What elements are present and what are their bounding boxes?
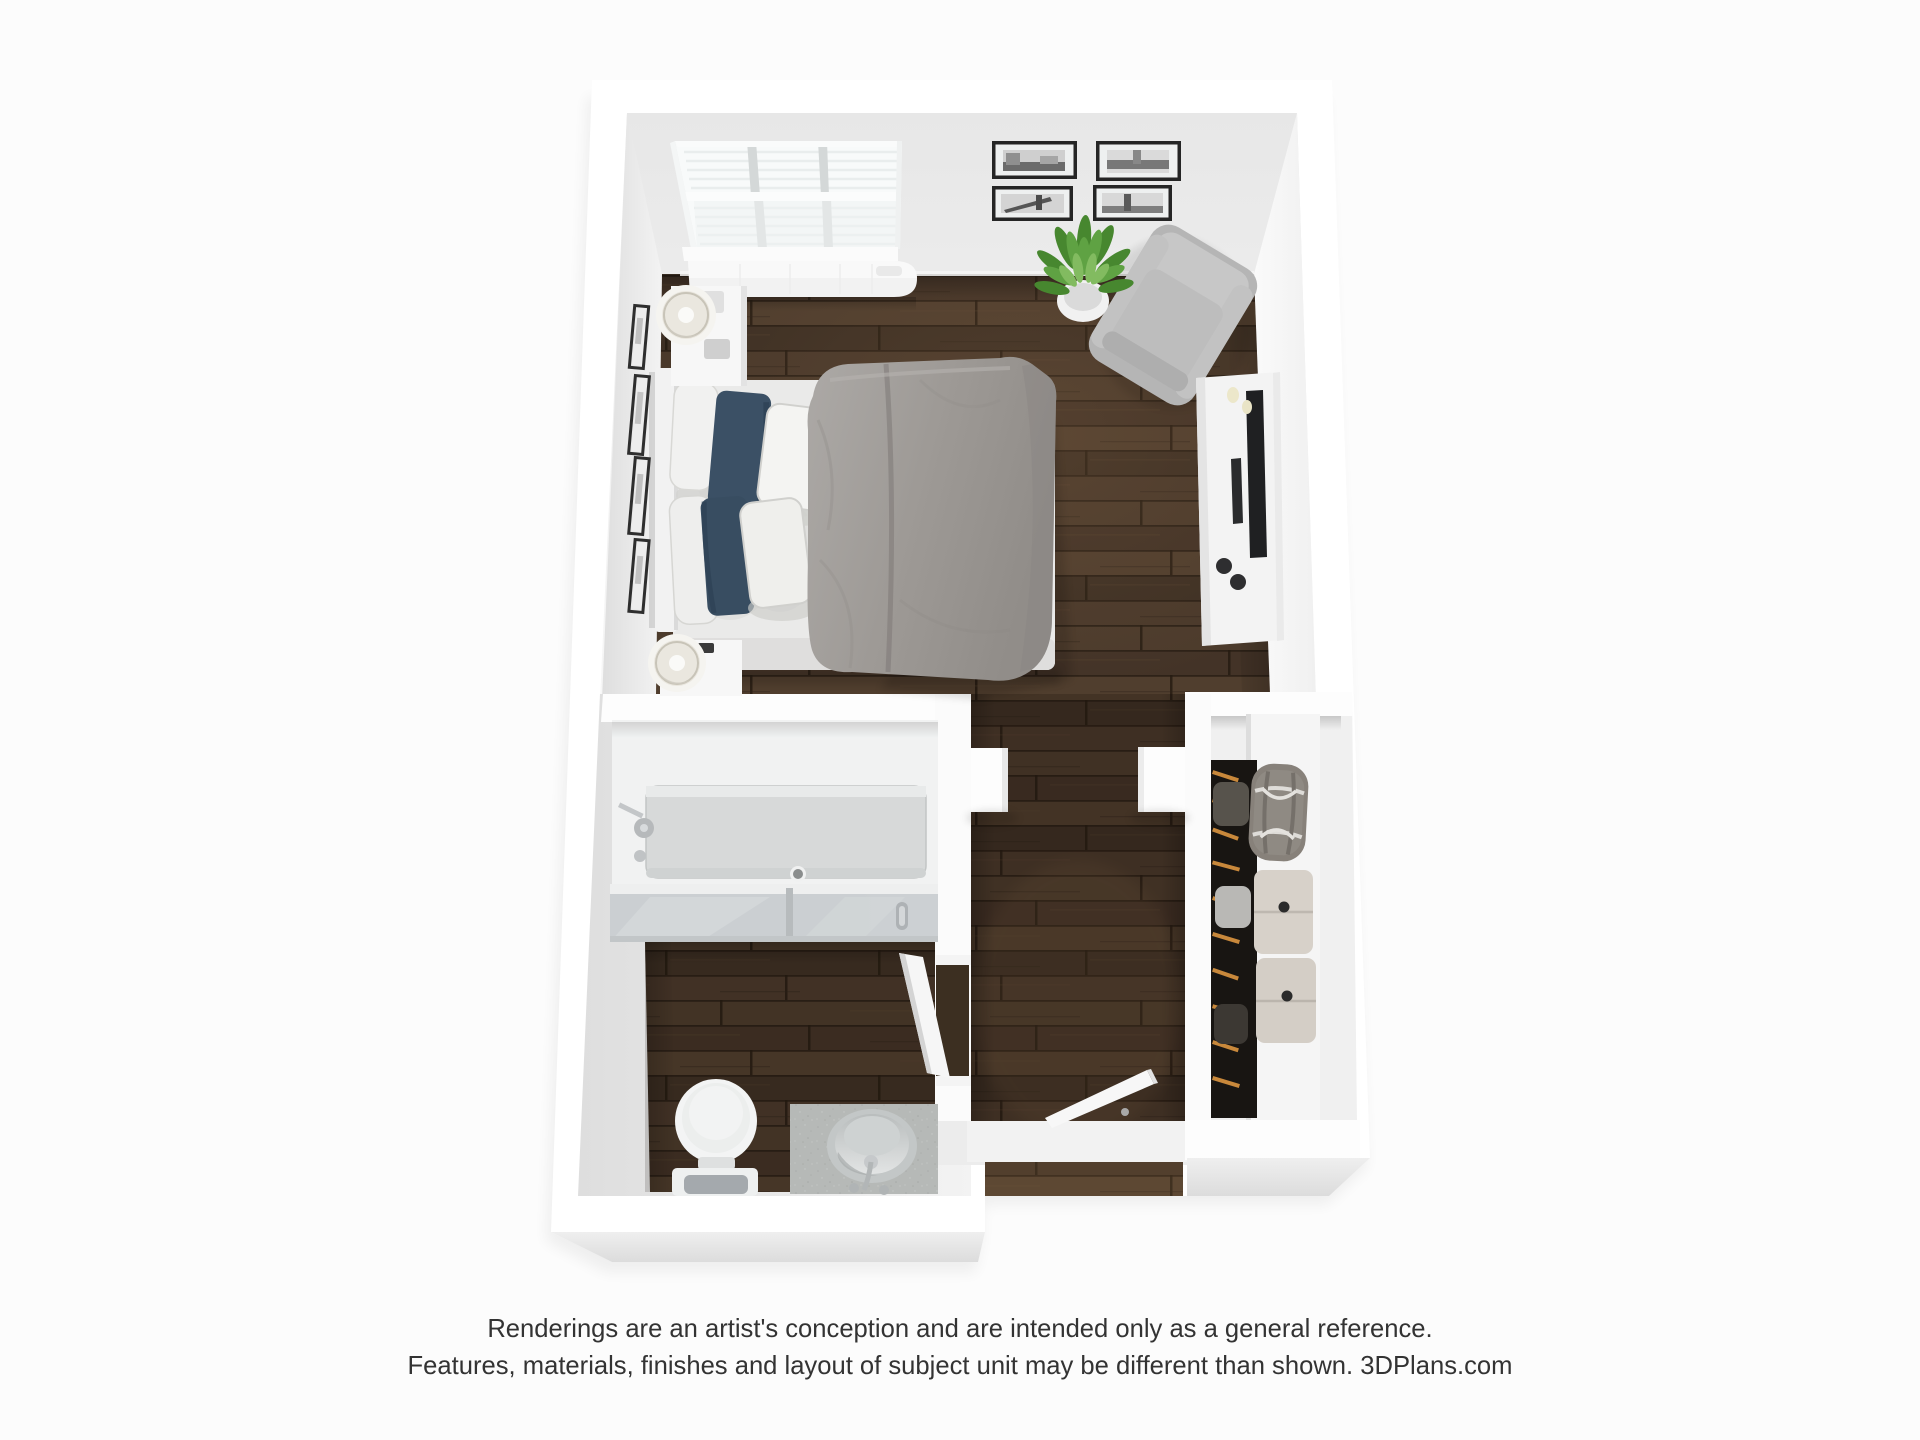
svg-text:Renderings are an artist's con: Renderings are an artist's conception an…	[487, 1315, 1432, 1343]
svg-text:Features, materials, finishes: Features, materials, finishes and layout…	[408, 1352, 1513, 1380]
